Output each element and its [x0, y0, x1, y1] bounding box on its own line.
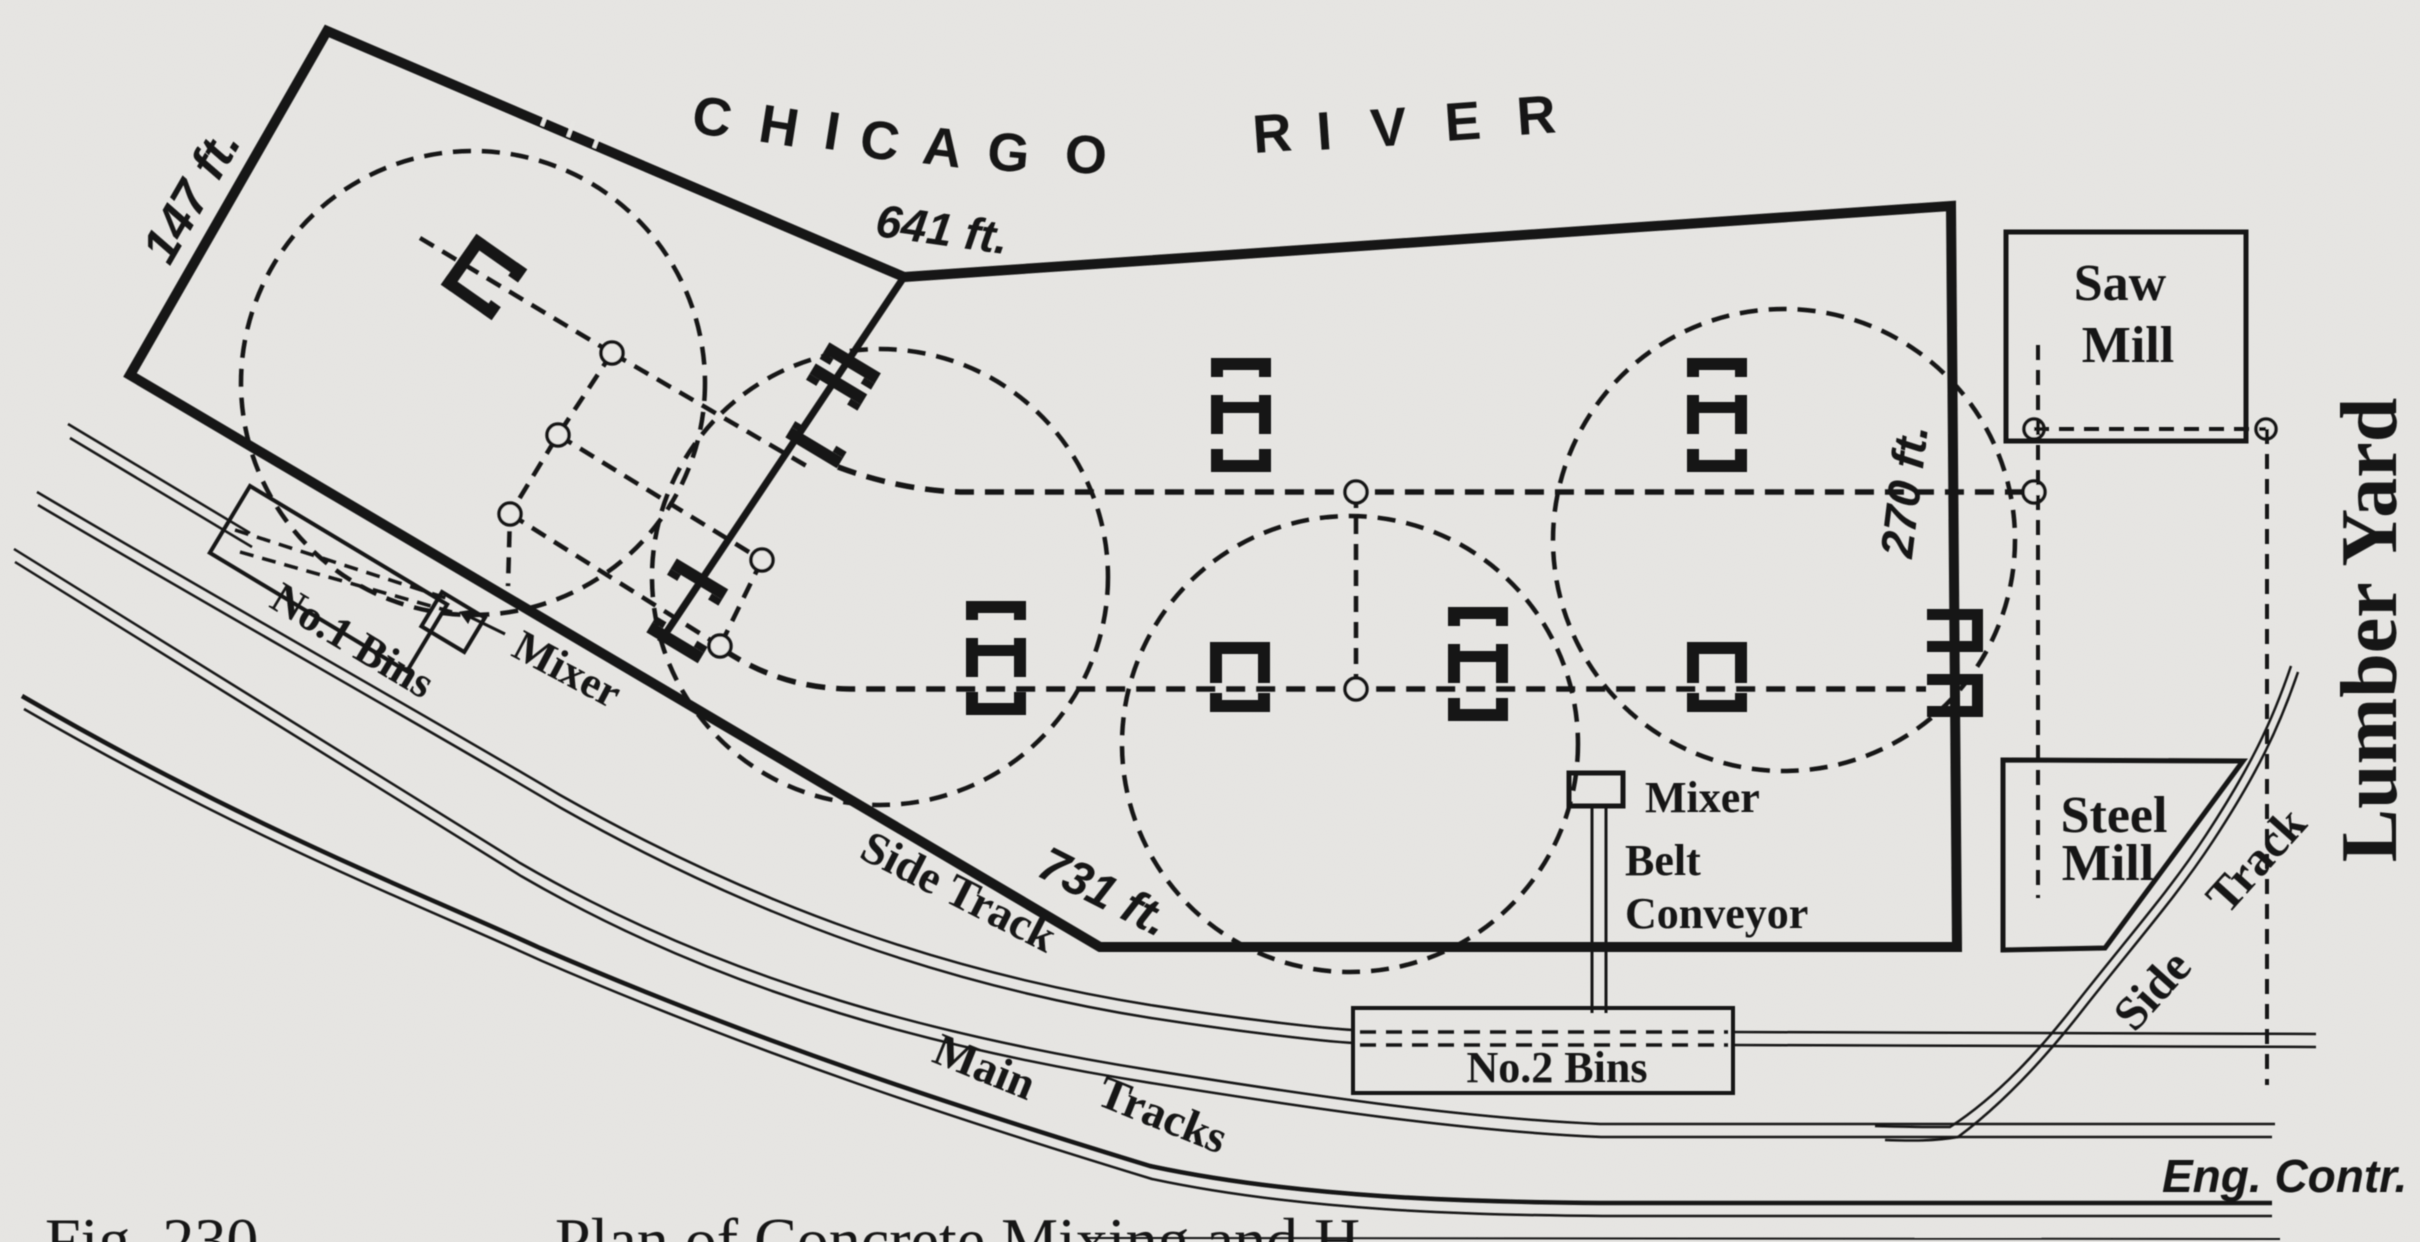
- svg-text:Conveyor: Conveyor: [1625, 889, 1808, 938]
- svg-text:E: E: [1443, 91, 1483, 153]
- svg-text:—: —: [419, 1205, 485, 1242]
- svg-text:R: R: [1251, 102, 1294, 165]
- svg-text:Eng. Contr.: Eng. Contr.: [2162, 1150, 2407, 1202]
- svg-text:A: A: [920, 115, 966, 179]
- svg-text:Fig. 230.: Fig. 230.: [45, 1205, 274, 1242]
- svg-text:No.2 Bins: No.2 Bins: [1467, 1043, 1648, 1092]
- svg-text:C: C: [856, 108, 903, 173]
- svg-text:Lumber Yard: Lumber Yard: [2326, 398, 2414, 863]
- svg-text:Saw: Saw: [2074, 255, 2167, 312]
- svg-text:Mill: Mill: [2062, 835, 2154, 892]
- svg-text:R: R: [1515, 84, 1558, 147]
- svg-text:Plan of Concrete Mixing and H: Plan of Concrete Mixing and H: [555, 1205, 1360, 1242]
- svg-text:O: O: [1063, 124, 1108, 186]
- svg-text:Mixer: Mixer: [1645, 773, 1760, 822]
- svg-text:Mill: Mill: [2082, 317, 2174, 374]
- svg-text:V: V: [1369, 97, 1409, 159]
- svg-text:Belt: Belt: [1625, 836, 1701, 885]
- svg-text:G: G: [985, 121, 1032, 184]
